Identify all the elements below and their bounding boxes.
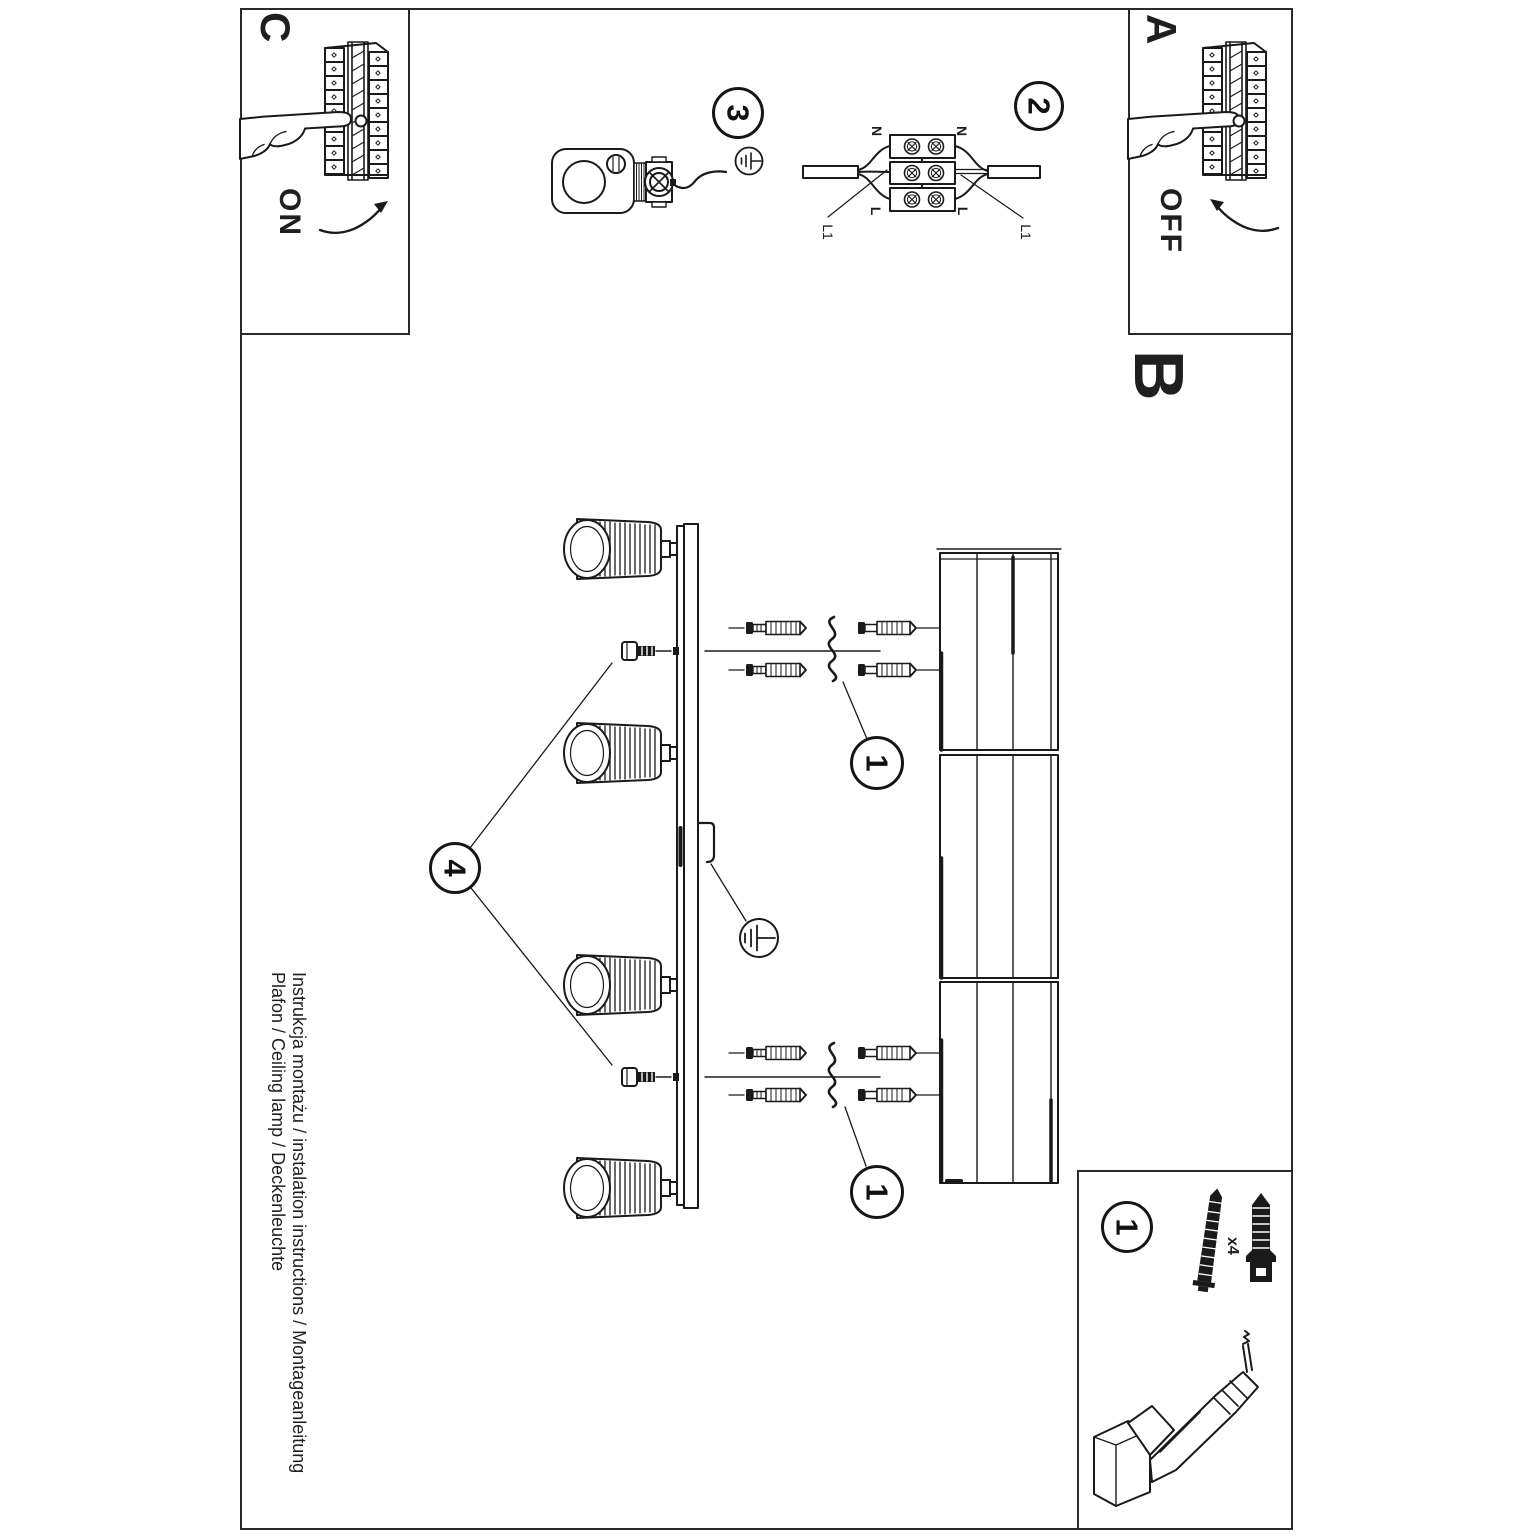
- terminal-block-diagram: [803, 135, 1040, 218]
- step-3-badge: 3: [712, 87, 764, 139]
- wall-section: [937, 549, 1061, 1183]
- label-line-left: L: [868, 207, 884, 216]
- label-line-right: L: [955, 207, 971, 216]
- instruction-sheet: { "sheet": { "power_on": { "label": "C",…: [0, 0, 1540, 1540]
- step-1-badge-upper: 1: [850, 736, 904, 790]
- earth-symbol-icon: [740, 919, 778, 957]
- kit-anchor-icon: [1246, 1193, 1276, 1282]
- step-2-badge: 2: [1014, 81, 1064, 131]
- footer-title-line2: Plafon / Ceiling lamp / Deckenleuchte: [269, 972, 287, 1271]
- power-off-label: A: [1140, 14, 1182, 44]
- kit-step-1-badge: 1: [1101, 1201, 1153, 1253]
- label-neutral-left: N: [869, 126, 885, 136]
- kit-screw-icon: [1192, 1187, 1228, 1293]
- power-on-state: ON: [274, 188, 304, 237]
- centerlines: [705, 651, 880, 1077]
- label-line1-left: L1: [820, 224, 836, 240]
- label-neutral-right: N: [954, 126, 970, 136]
- drill-icon: [1094, 1331, 1258, 1506]
- power-cable-hook: [698, 823, 714, 862]
- lamp-holder: [552, 149, 726, 213]
- on-arrow-icon: [320, 201, 388, 233]
- power-on-label: C: [254, 12, 296, 42]
- earth-symbol-icon: [736, 148, 763, 175]
- footer-title-line1: Instrukcja montażu / instalation instruc…: [290, 972, 308, 1473]
- breaker-panel-off: [1203, 42, 1266, 180]
- diagram-artwork: N N L L L1 L1: [0, 0, 1540, 1540]
- breaker-panel-on: [240, 42, 388, 180]
- power-off-state: OFF: [1155, 188, 1185, 254]
- off-arrow-icon: [1210, 199, 1278, 231]
- kit-quantity-label: x4: [1224, 1237, 1240, 1255]
- lamp-assembly: [564, 519, 714, 1218]
- label-line1-right: L1: [1018, 224, 1034, 240]
- step-4-badge: 4: [429, 842, 481, 894]
- step-1-badge-lower: 1: [850, 1165, 904, 1219]
- leader-line-earth: [711, 864, 746, 921]
- section-b-label: B: [1124, 350, 1194, 401]
